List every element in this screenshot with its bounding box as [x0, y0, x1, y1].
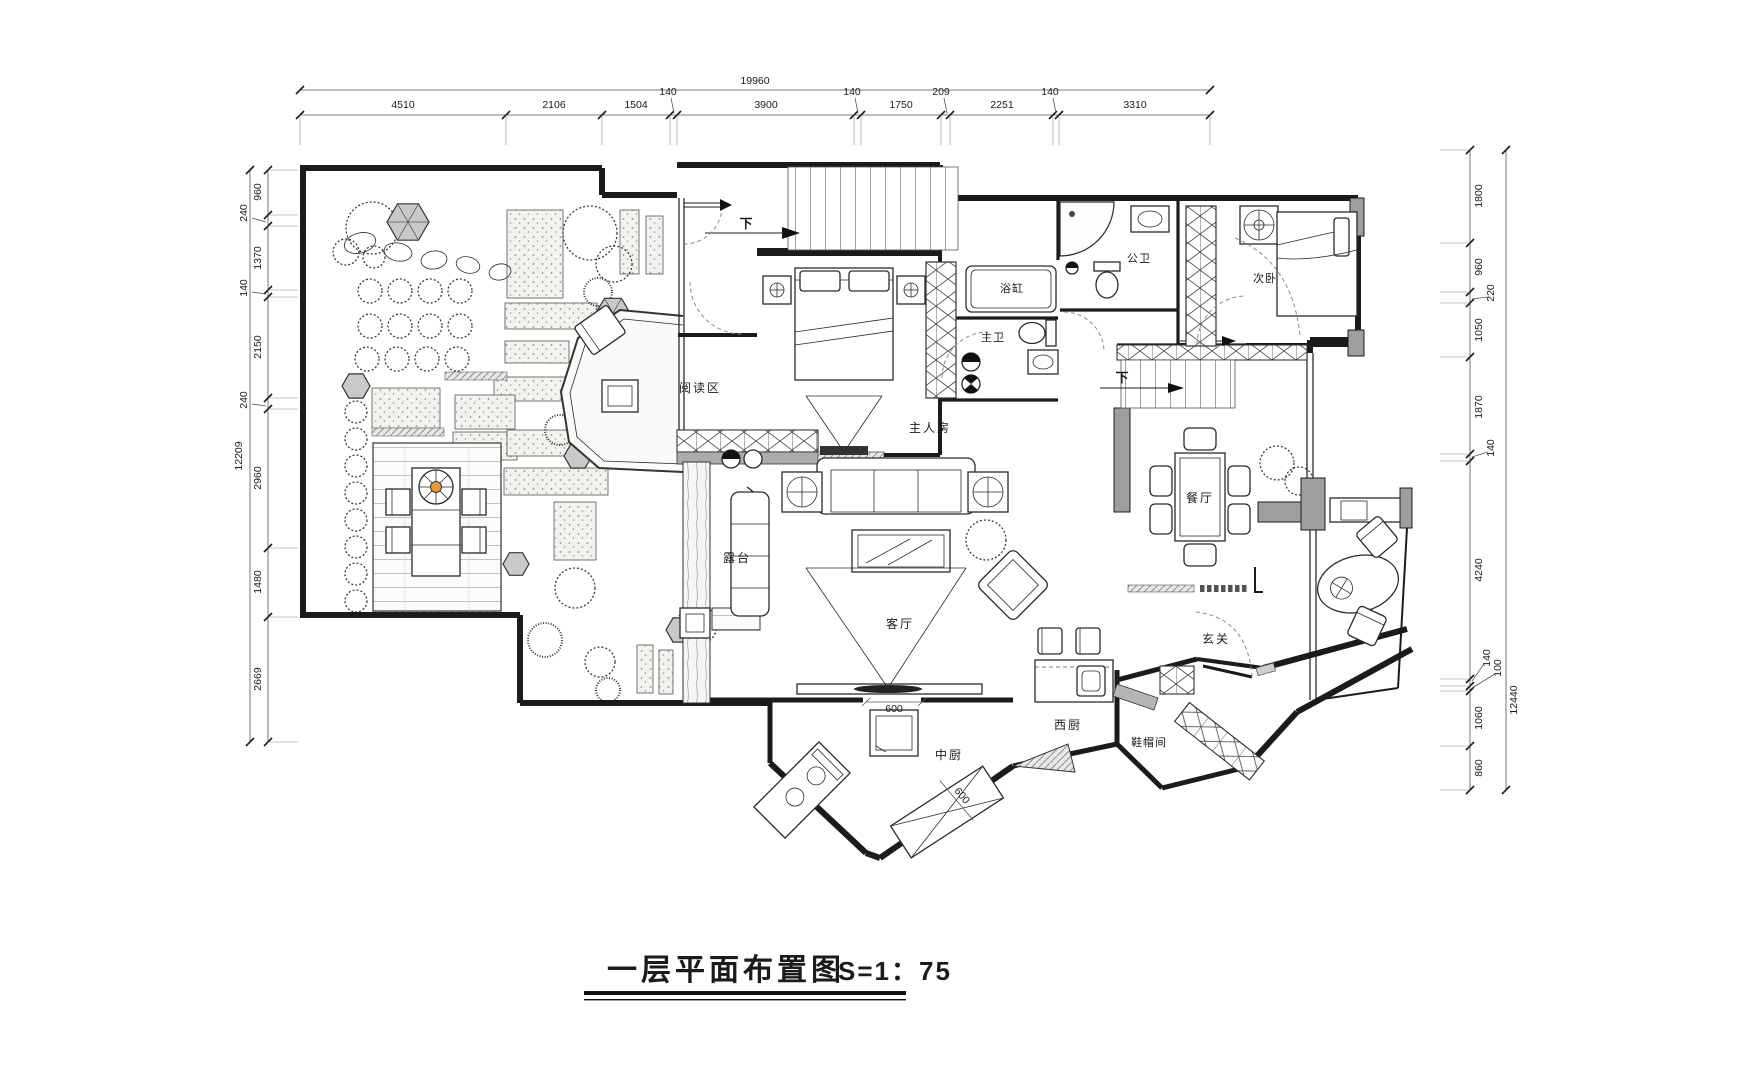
door-width-label-1: 600 — [885, 703, 903, 715]
sheet-scale: S=1：75 — [838, 956, 952, 986]
reading-bay — [561, 305, 683, 472]
dim-right-3: 1050 — [1473, 318, 1485, 342]
dim-right-1: 960 — [1473, 258, 1485, 276]
balcony-furniture — [1311, 515, 1404, 647]
room-label-second-bedroom: 次卧 — [1253, 271, 1277, 285]
stair-down-label-2: 下 — [1115, 371, 1128, 386]
shower-icon — [1060, 202, 1114, 256]
dim-top-0: 4510 — [391, 99, 415, 111]
room-label-guest-bath: 公卫 — [1127, 252, 1151, 265]
dim-left-5: 240 — [238, 391, 250, 409]
living-room-furniture — [731, 458, 1050, 694]
dim-right-total: 12440 — [1508, 685, 1520, 714]
room-label-western-kitchen: 西厨 — [1054, 718, 1082, 732]
dimension-chain-top: 19960 4510 2106 1504 140 3900 140 1750 2… — [296, 75, 1214, 145]
dimension-chain-left: 12209 960 240 1370 140 2150 240 2960 148… — [233, 166, 298, 746]
dim-right-5: 140 — [1485, 439, 1497, 457]
title-block: 一层平面布置图 S=1：75 — [584, 953, 952, 1000]
dim-top-1: 2106 — [542, 99, 566, 111]
dim-right-4: 1870 — [1473, 395, 1485, 419]
room-label-living: 客厅 — [886, 616, 914, 631]
dim-left-8: 2669 — [252, 667, 264, 691]
dim-right-2: 220 — [1485, 284, 1497, 302]
dim-top-5: 140 — [843, 86, 861, 98]
dim-top-total: 19960 — [740, 75, 769, 87]
dim-left-7: 1480 — [252, 570, 264, 594]
dim-right-10: 860 — [1473, 759, 1485, 777]
room-label-cloakroom: 鞋帽间 — [1131, 735, 1167, 749]
room-label-entry: 玄关 — [1202, 631, 1230, 646]
dim-top-10: 3310 — [1123, 99, 1147, 111]
dim-left-6: 2960 — [252, 466, 264, 490]
wardrobe-icon-2 — [1186, 206, 1216, 346]
room-label-reading-area: 阅读区 — [679, 381, 721, 395]
title-underline-thin — [584, 999, 906, 1000]
dim-top-2: 1504 — [624, 99, 648, 111]
room-label-master-bath: 主卫 — [981, 331, 1005, 344]
room-label-master-bedroom: 主人房 — [909, 420, 951, 435]
room-label-terrace: 露台 — [723, 550, 751, 565]
tv-icon — [820, 446, 868, 455]
dim-top-6: 1750 — [889, 99, 913, 111]
floor-plan-sheet: 19960 4510 2106 1504 140 3900 140 1750 2… — [0, 0, 1756, 1080]
toilet-icon-master — [1019, 323, 1045, 344]
dim-right-9: 1060 — [1473, 706, 1485, 730]
dimension-chain-right: 12440 1800 960 220 1050 1870 140 4240 14… — [1440, 146, 1520, 794]
dim-left-1: 240 — [238, 204, 250, 222]
stair-dining: 下 — [1100, 336, 1307, 408]
stair-down-label-1: 下 — [739, 217, 752, 232]
title-underline-thick — [584, 991, 906, 995]
dim-left-0: 960 — [252, 183, 264, 201]
coffee-table-icon — [852, 530, 950, 572]
garden-deck — [373, 443, 501, 611]
dim-left-4: 2150 — [252, 335, 264, 359]
room-label-chinese-kitchen: 中厨 — [935, 747, 963, 762]
parasol-icon — [419, 470, 453, 504]
dim-right-6: 4240 — [1473, 558, 1485, 582]
tv-icon-2 — [854, 685, 922, 693]
shoe-cabinet-icon — [1175, 703, 1265, 780]
dim-top-3: 140 — [659, 86, 677, 98]
sheet-title: 一层平面布置图 — [607, 953, 845, 988]
dim-left-3: 140 — [238, 279, 250, 297]
dim-top-4: 3900 — [754, 99, 778, 111]
floor-plan-drawing: 19960 4510 2106 1504 140 3900 140 1750 2… — [0, 0, 1756, 1080]
room-label-bathtub: 浴缸 — [1000, 281, 1024, 295]
fridge-icon — [870, 710, 918, 756]
dim-top-9: 140 — [1041, 86, 1059, 98]
room-label-dining: 餐厅 — [1186, 490, 1214, 505]
toilet-icon-guest — [1096, 272, 1118, 298]
wardrobe-icon — [926, 262, 956, 398]
sofa-icon — [817, 458, 975, 514]
dim-top-7: 209 — [932, 86, 950, 98]
kitchen-elements — [754, 628, 1113, 858]
dim-left-total: 12209 — [233, 441, 245, 470]
dim-top-8: 2251 — [990, 99, 1014, 111]
vanity-icon — [1131, 206, 1169, 232]
dim-right-8: 100 — [1492, 659, 1504, 677]
dim-right-0: 1800 — [1473, 184, 1485, 208]
stair-top: 下 — [705, 167, 958, 250]
dim-left-2: 1370 — [252, 246, 264, 270]
